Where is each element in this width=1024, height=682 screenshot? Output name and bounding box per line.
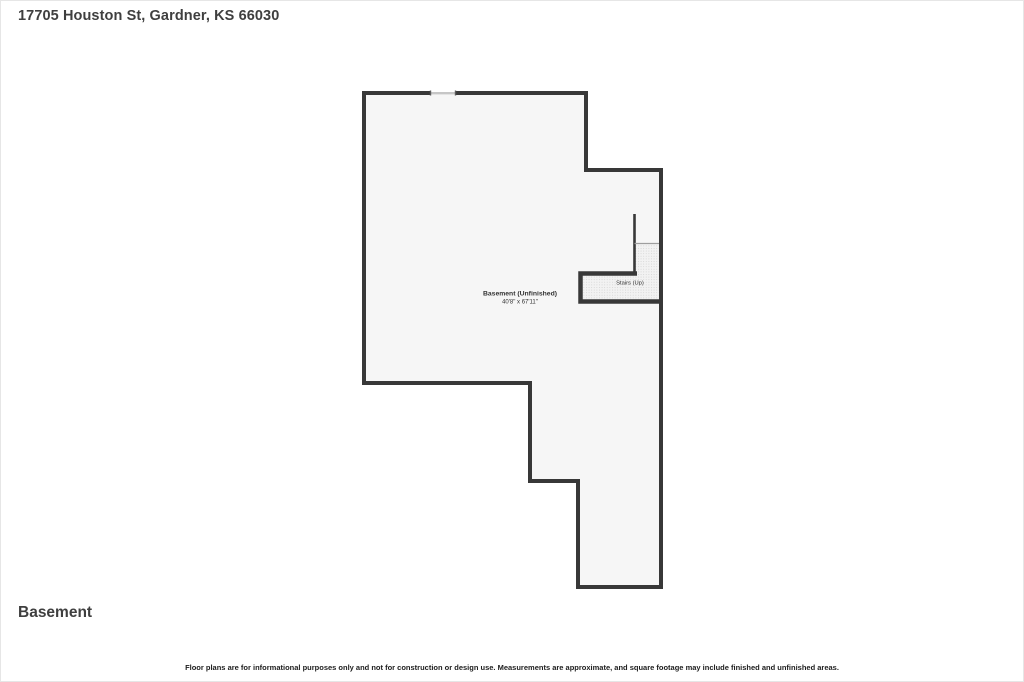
room-dimensions-label: 40'8" x 67'11" (502, 300, 538, 306)
stairs-lower-treads (581, 275, 660, 300)
stairs-label: Stairs (Up) (616, 281, 644, 287)
window (430, 90, 456, 97)
floor-plan-page: 17705 Houston St, Gardner, KS 66030 (0, 0, 1024, 682)
floor-name-label: Basement (18, 604, 92, 622)
disclaimer-text: Floor plans are for informational purpos… (1, 663, 1023, 672)
stairs-upper-treads (636, 244, 660, 275)
room-label: Basement (Unfinished) (483, 291, 557, 298)
basement-outline (364, 93, 661, 587)
floor-plan-drawing: Basement (Unfinished) 40'8" x 67'11" Sta… (1, 1, 1024, 682)
